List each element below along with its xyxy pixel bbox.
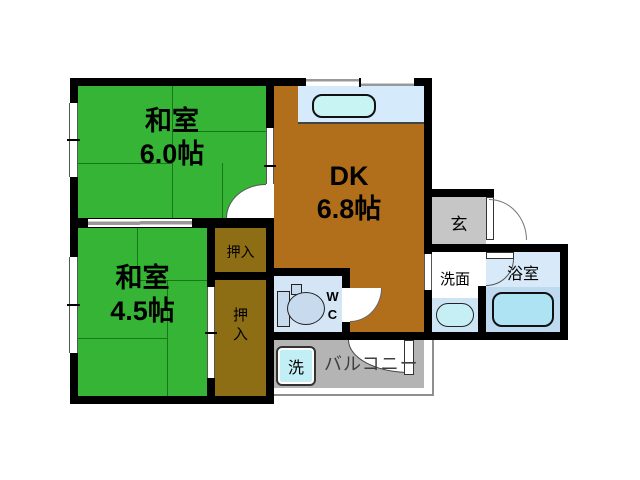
- wall-south: [266, 332, 568, 340]
- door-gap-wc: [342, 288, 350, 322]
- balcony-label: バルコニー: [324, 350, 419, 376]
- dk-size: 6.8帖: [274, 193, 424, 226]
- wall-dk-right: [424, 78, 432, 197]
- door-gap-senmen: [424, 254, 432, 290]
- tatami-line: [222, 163, 223, 218]
- wall-genkan-top: [424, 189, 494, 197]
- oshiire-lower-label: 押入: [232, 307, 249, 345]
- kitchen-sink: [312, 94, 376, 118]
- balcony-edge-right: [432, 340, 434, 396]
- tatami-line: [78, 338, 167, 339]
- wall-center-column: [266, 78, 274, 404]
- washitsu6-label: 和室 6.0帖: [78, 105, 266, 171]
- washitsu45-label: 和室 4.5帖: [78, 262, 207, 328]
- wall-bottom-main: [70, 396, 274, 404]
- washitsu45-name: 和室: [78, 262, 207, 295]
- bathtub: [492, 292, 554, 327]
- balcony-edge-bottom: [274, 394, 434, 396]
- wall-wc-top: [266, 268, 350, 276]
- sliding-door-pane: [88, 219, 140, 225]
- dk-name: DK: [274, 160, 424, 193]
- senmen-sink: [436, 303, 474, 327]
- toilet-bowl: [287, 292, 325, 325]
- sliding-door-pane: [140, 221, 192, 227]
- door-leaf-bath: [486, 252, 514, 259]
- washer-box: 洗: [276, 346, 316, 386]
- senmen-label: 洗面: [432, 268, 478, 289]
- kitchen-window-pane: [360, 80, 414, 86]
- washitsu6-size: 6.0帖: [78, 138, 266, 171]
- oshiire-upper-label: 押入: [215, 242, 266, 262]
- kitchen-window-pane: [306, 79, 360, 85]
- door-arc-entrance: [489, 199, 527, 240]
- washitsu45-size: 4.5帖: [78, 295, 207, 328]
- window-tick: [359, 78, 361, 87]
- genkan-label: 玄: [432, 210, 486, 235]
- floor-plan: 洗 和室 6.0帖 和室 4.5帖 DK 6.8帖 押入 押入 玄 洗面 浴室 …: [0, 0, 640, 480]
- window-tick: [205, 332, 217, 334]
- wall-genkan-left: [424, 197, 432, 244]
- wall-wash-top: [424, 244, 568, 252]
- washer-label: 洗: [288, 354, 304, 378]
- dk-label: DK 6.8帖: [274, 160, 424, 226]
- wall-closet-divider: [215, 272, 266, 280]
- washitsu6-name: 和室: [78, 105, 266, 138]
- wc-label: WC: [325, 288, 340, 323]
- wall-right-outer: [560, 244, 568, 340]
- door-gap-bath: [478, 252, 486, 286]
- bath-label: 浴室: [486, 260, 560, 284]
- door-gap-washitsu6: [266, 184, 274, 218]
